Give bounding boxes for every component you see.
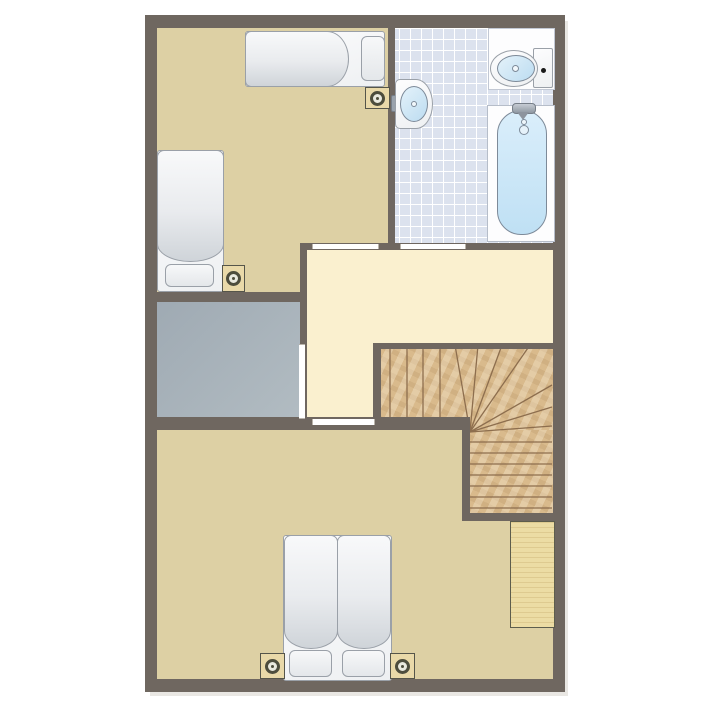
lamp-icon (395, 659, 410, 674)
wall-exterior-left (145, 15, 157, 692)
door-gray-room (299, 344, 305, 419)
room-hallway (300, 243, 553, 349)
wall-exterior-top (145, 15, 565, 28)
wall-stairs-top (373, 343, 553, 349)
lamp-icon (370, 91, 385, 106)
lamp-dot (401, 665, 404, 668)
nightstand-bottom-right (390, 653, 415, 679)
bed-single-left-pillow-0 (165, 264, 214, 287)
bed-single-top-pillow-0 (361, 36, 385, 81)
lamp-dot (232, 277, 235, 280)
lamp-icon (226, 271, 241, 286)
lamp-dot (271, 665, 274, 668)
wall-stairs-inner (462, 430, 470, 521)
bed-double-duvet-0 (284, 535, 338, 649)
wall-stairs-left (373, 343, 381, 430)
bathtub-drain (519, 125, 529, 135)
wall-below-left-bed (145, 292, 307, 302)
bed-double-pillow-0 (289, 650, 332, 677)
door-bedroom-top (312, 244, 379, 249)
wall-bedroom-bottom-top (145, 417, 470, 430)
nightstand-top (365, 87, 390, 109)
sink-drain (411, 101, 417, 107)
door-bathroom (400, 244, 466, 249)
lamp-dot (376, 97, 379, 100)
floor-plan (145, 15, 565, 692)
bed-single-top-duvet-0 (245, 31, 349, 87)
wall-stairs-bottom (462, 513, 553, 521)
wall-bedroom-bathroom-divider (388, 28, 395, 250)
door-bedroom-bottom (312, 419, 375, 425)
nightstand-bottom-left (260, 653, 285, 679)
bed-double-duvet-1 (337, 535, 391, 649)
lamp-icon (265, 659, 280, 674)
wardrobe (510, 521, 555, 628)
room-gray-room (157, 302, 307, 430)
toilet-drain (512, 65, 519, 72)
bed-double-pillow-1 (342, 650, 385, 677)
toilet-flush-button (541, 68, 546, 73)
bed-single-left-duvet-0 (157, 150, 224, 262)
floor-plan-canvas (0, 0, 710, 710)
nightstand-left (222, 265, 245, 292)
